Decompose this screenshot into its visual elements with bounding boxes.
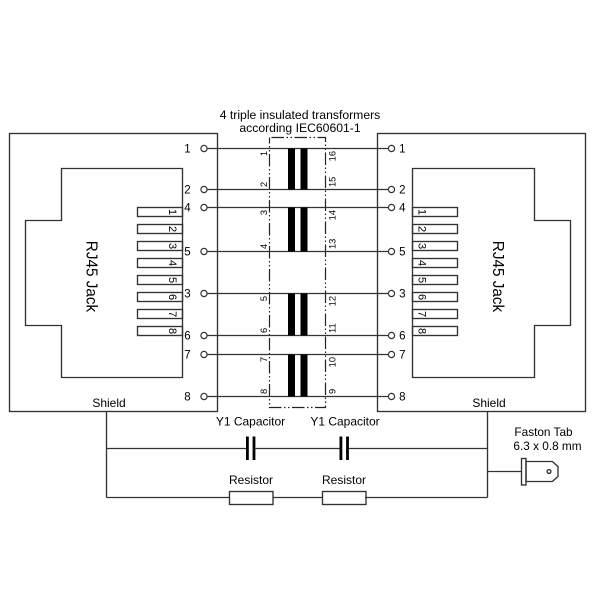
svg-text:6: 6 bbox=[166, 294, 178, 300]
svg-text:10: 10 bbox=[327, 357, 337, 367]
svg-text:1: 1 bbox=[166, 209, 178, 215]
svg-text:Resistor: Resistor bbox=[229, 473, 273, 487]
svg-text:4 triple insulated transformer: 4 triple insulated transformers bbox=[220, 108, 381, 122]
svg-text:4: 4 bbox=[259, 244, 269, 249]
svg-text:1: 1 bbox=[399, 144, 405, 156]
svg-text:4: 4 bbox=[184, 203, 191, 215]
svg-text:8: 8 bbox=[399, 392, 405, 404]
svg-text:4: 4 bbox=[166, 260, 178, 266]
svg-text:16: 16 bbox=[327, 151, 337, 161]
svg-text:5: 5 bbox=[259, 296, 269, 301]
svg-text:6: 6 bbox=[416, 294, 428, 300]
svg-text:4: 4 bbox=[416, 260, 428, 266]
svg-text:3: 3 bbox=[184, 289, 190, 301]
svg-text:3: 3 bbox=[259, 210, 269, 215]
svg-text:3: 3 bbox=[166, 243, 178, 249]
svg-text:1: 1 bbox=[259, 151, 269, 156]
svg-text:RJ45 Jack: RJ45 Jack bbox=[83, 241, 100, 313]
svg-text:8: 8 bbox=[166, 328, 178, 334]
svg-text:14: 14 bbox=[327, 210, 337, 220]
svg-text:7: 7 bbox=[184, 350, 190, 362]
svg-text:8: 8 bbox=[416, 328, 428, 334]
svg-text:7: 7 bbox=[259, 357, 269, 362]
svg-text:Resistor: Resistor bbox=[322, 473, 366, 487]
svg-text:8: 8 bbox=[184, 392, 190, 404]
svg-text:3: 3 bbox=[416, 243, 428, 249]
svg-text:6: 6 bbox=[259, 328, 269, 333]
svg-text:4: 4 bbox=[399, 203, 406, 215]
svg-text:1: 1 bbox=[416, 209, 428, 215]
svg-text:5: 5 bbox=[416, 277, 428, 283]
svg-text:8: 8 bbox=[259, 389, 269, 394]
svg-text:7: 7 bbox=[166, 311, 178, 317]
svg-text:15: 15 bbox=[327, 177, 337, 187]
svg-text:7: 7 bbox=[399, 350, 405, 362]
svg-text:6.3 x 0.8 mm: 6.3 x 0.8 mm bbox=[513, 439, 581, 453]
svg-text:1: 1 bbox=[184, 144, 190, 156]
svg-text:5: 5 bbox=[184, 247, 190, 259]
svg-text:3: 3 bbox=[399, 289, 405, 301]
svg-text:2: 2 bbox=[416, 226, 428, 232]
svg-text:5: 5 bbox=[166, 277, 178, 283]
svg-text:2: 2 bbox=[399, 185, 405, 197]
svg-text:according IEC60601-1: according IEC60601-1 bbox=[239, 121, 360, 135]
svg-text:2: 2 bbox=[184, 185, 190, 197]
svg-text:Shield: Shield bbox=[472, 396, 505, 410]
svg-text:5: 5 bbox=[399, 247, 405, 259]
svg-text:6: 6 bbox=[399, 331, 405, 343]
svg-text:9: 9 bbox=[327, 389, 337, 394]
svg-text:11: 11 bbox=[327, 323, 337, 333]
svg-text:12: 12 bbox=[327, 296, 337, 306]
svg-text:Faston Tab: Faston Tab bbox=[514, 425, 573, 439]
svg-text:Shield: Shield bbox=[92, 396, 125, 410]
svg-text:13: 13 bbox=[327, 239, 337, 249]
svg-text:7: 7 bbox=[416, 311, 428, 317]
svg-text:Y1 Capacitor: Y1 Capacitor bbox=[216, 415, 285, 429]
svg-text:2: 2 bbox=[259, 182, 269, 187]
svg-text:6: 6 bbox=[184, 331, 190, 343]
svg-text:RJ45 Jack: RJ45 Jack bbox=[489, 241, 506, 313]
svg-text:2: 2 bbox=[166, 226, 178, 232]
svg-text:Y1 Capacitor: Y1 Capacitor bbox=[310, 415, 379, 429]
